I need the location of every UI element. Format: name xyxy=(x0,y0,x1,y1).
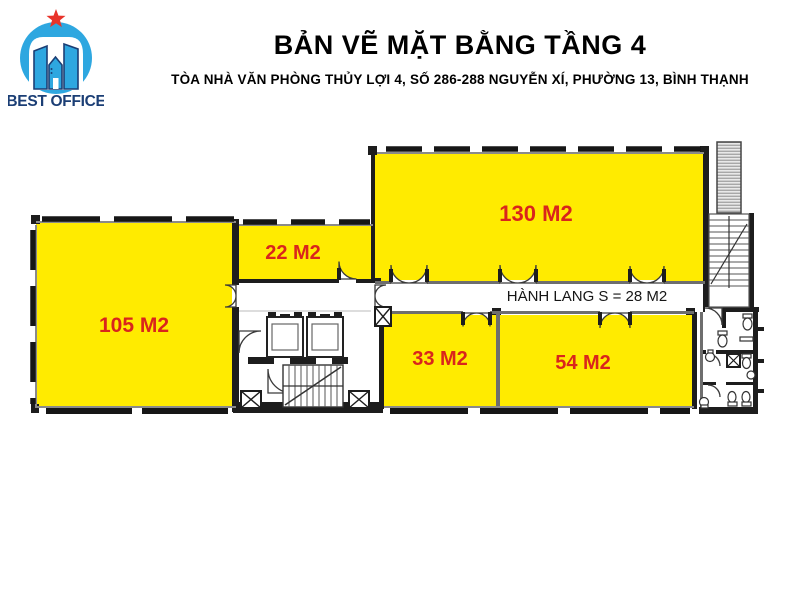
logo-text: BEST OFFICE xyxy=(8,93,104,110)
wc-shelf xyxy=(740,337,753,341)
page-subtitle: TÒA NHÀ VĂN PHÒNG THỦY LỢI 4, SỐ 286-288… xyxy=(150,72,770,87)
room-label-22: 22 M2 xyxy=(265,242,321,264)
best-office-logo: BEST OFFICE xyxy=(8,6,104,110)
sink-icon xyxy=(700,398,709,409)
ramp-hatch xyxy=(717,142,741,213)
elevator-icon xyxy=(307,312,343,357)
elevator-icon xyxy=(267,312,303,357)
elevator-icons xyxy=(267,312,343,357)
page-title: BẢN VẼ MẶT BẰNG TẦNG 4 xyxy=(150,30,770,61)
floor-plan-page: 105 M2 22 M2 130 M2 33 M2 54 M2 HÀNH LAN… xyxy=(0,0,800,600)
room-label-33: 33 M2 xyxy=(412,348,468,370)
stair-icon-core xyxy=(283,365,343,407)
toilet-icon xyxy=(742,354,751,369)
toilet-icon xyxy=(742,392,751,407)
room-label-54: 54 M2 xyxy=(555,352,611,374)
sink-icon xyxy=(747,371,755,379)
corridor-label: HÀNH LANG S = 28 M2 xyxy=(507,288,667,305)
toilet-icon xyxy=(743,314,752,330)
header: BẢN VẼ MẶT BẰNG TẦNG 4 TÒA NHÀ VĂN PHÒNG… xyxy=(150,30,770,87)
toilet-icon xyxy=(728,392,737,407)
room-label-105: 105 M2 xyxy=(99,314,169,337)
floor-plan-drawing: 105 M2 22 M2 130 M2 33 M2 54 M2 HÀNH LAN… xyxy=(0,0,800,600)
toilet-icon xyxy=(718,331,727,347)
logo-door xyxy=(53,78,59,89)
room-label-130: 130 M2 xyxy=(499,201,572,226)
stair-icon-right xyxy=(709,142,749,307)
